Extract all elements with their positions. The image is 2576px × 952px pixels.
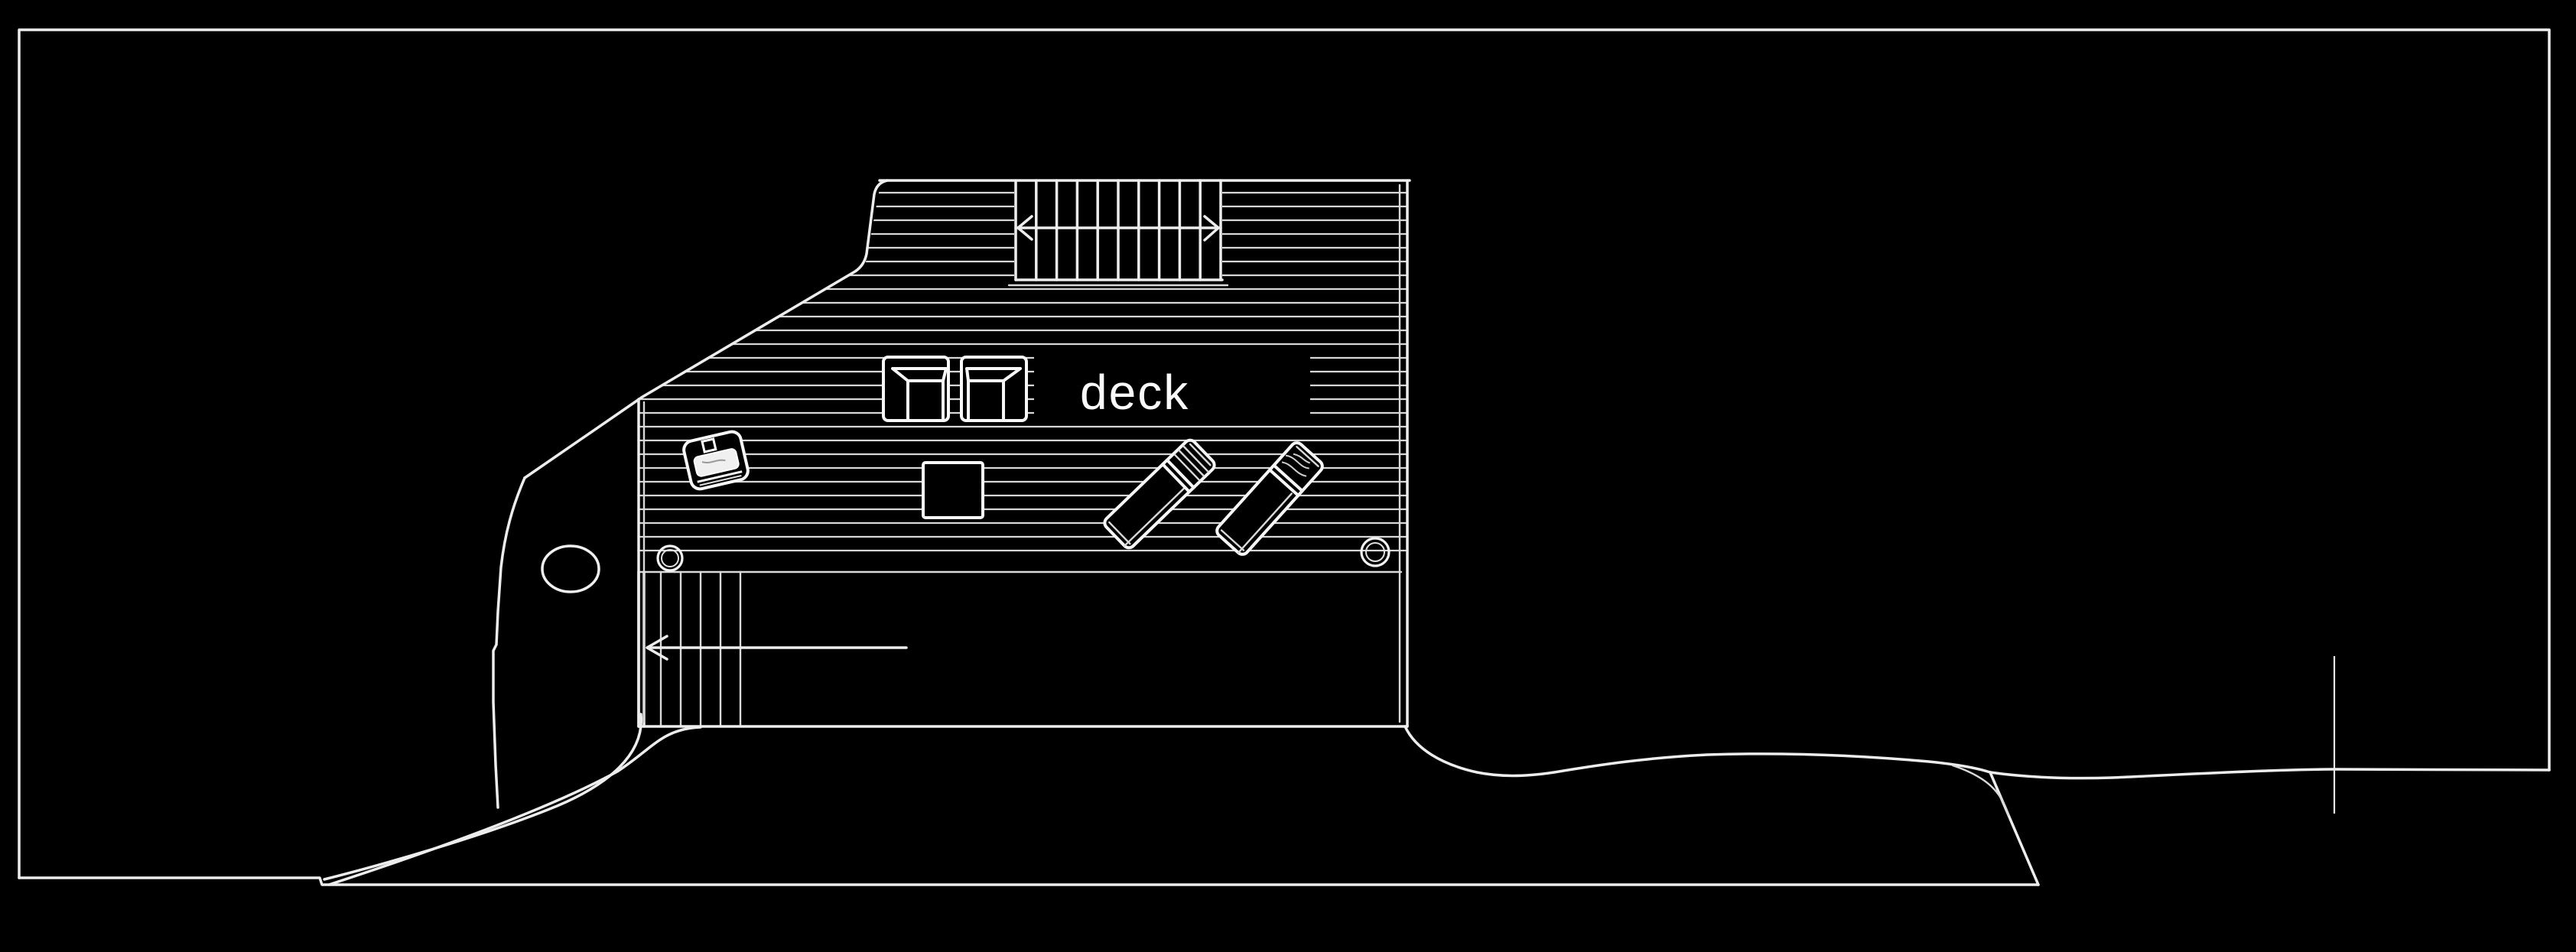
deck-label: deck — [1080, 365, 1189, 420]
lower-staircase — [639, 572, 740, 726]
footing-circle-right — [1361, 538, 1389, 566]
ellipse-marker — [542, 546, 599, 592]
entry-arrow — [647, 636, 906, 659]
boat-wedge — [324, 714, 701, 885]
footing-circle-left — [658, 546, 682, 570]
site-plan-canvas: deck — [0, 0, 2576, 952]
side-table — [923, 463, 983, 518]
deck-diagonal-edge — [525, 180, 887, 478]
rock-outline — [493, 478, 599, 807]
deck-label-group: deck — [1034, 349, 1310, 424]
armchair-left — [883, 357, 948, 421]
border-bottom — [19, 878, 2038, 885]
terrain-line — [1405, 726, 2549, 885]
upper-staircase — [1009, 180, 1228, 285]
sun-lounger-right — [1215, 440, 1325, 557]
cliff-line — [1990, 772, 2038, 885]
site-plan-page: deck — [0, 0, 2576, 952]
armchair-right — [961, 357, 1026, 421]
